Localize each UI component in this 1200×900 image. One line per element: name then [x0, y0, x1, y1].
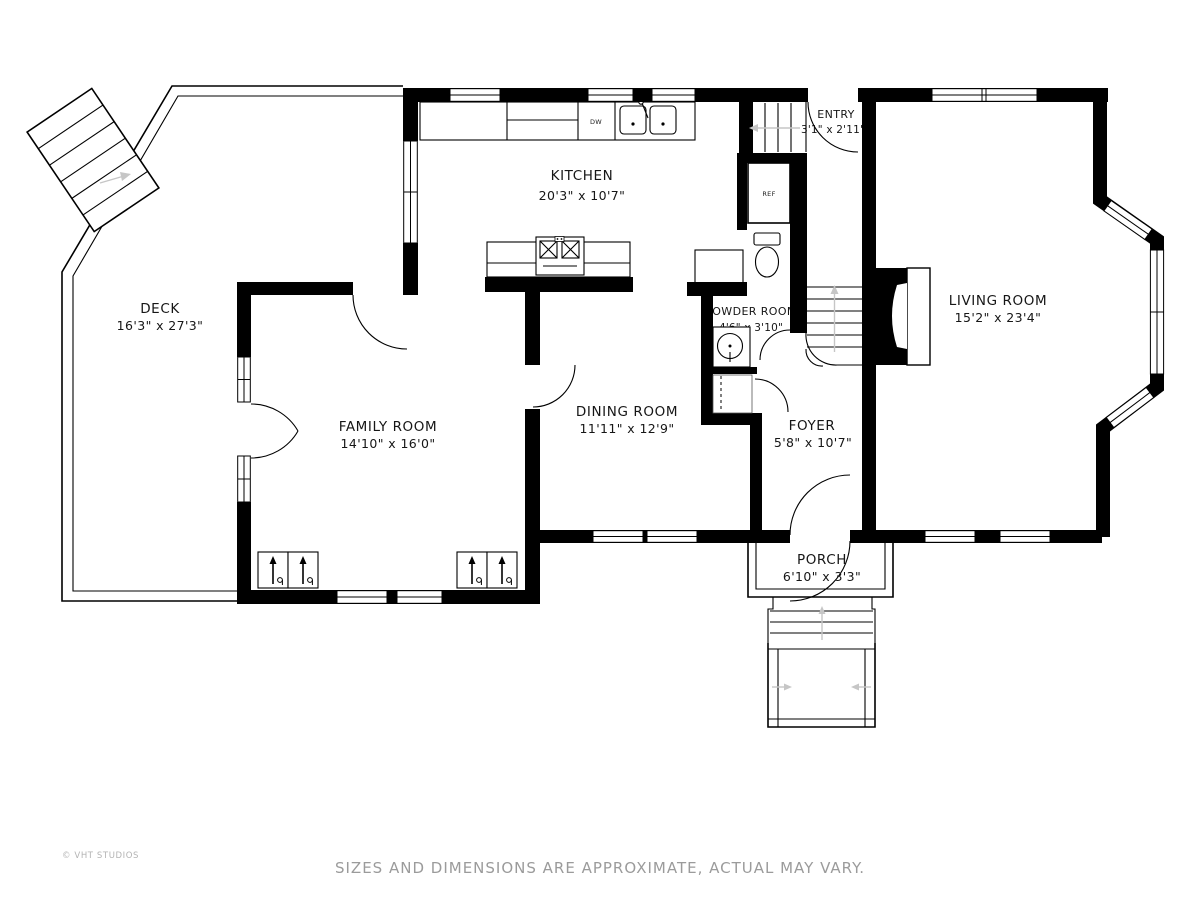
- studio-watermark: © VHT STUDIOS: [62, 851, 139, 861]
- family-window-south-2: [397, 591, 442, 604]
- family-window-south-1: [337, 591, 387, 604]
- deck-door-arc-2: [251, 404, 298, 431]
- entry-label: ENTRY: [817, 108, 855, 121]
- living-window-south-2: [1000, 531, 1050, 543]
- refrigerator: REF: [748, 163, 790, 223]
- family-room-dims: 14'10" x 16'0": [341, 436, 436, 451]
- family-dining-door-arc: [533, 365, 575, 407]
- dining-window-south-2: [647, 531, 697, 543]
- heater-icon: [288, 552, 318, 588]
- entry-stairs: [749, 102, 806, 152]
- deck-stairs: [27, 88, 159, 231]
- vanity-sink-icon: [713, 327, 750, 367]
- porch-dims: 6'10" x 3'3": [783, 569, 861, 584]
- entry-dims: 3'1" x 2'11": [801, 124, 865, 136]
- living-window-top: [932, 89, 1037, 102]
- family-kitchen-door-arc: [353, 295, 407, 349]
- living-window-south-1: [925, 531, 975, 543]
- windows: [238, 89, 1164, 604]
- dishwasher: DW: [590, 118, 602, 126]
- kitchen-dims: 20'3" x 10'7": [539, 188, 626, 203]
- dining-room-label: DINING ROOM: [576, 404, 678, 420]
- porch-direction-arrows: [772, 606, 871, 691]
- kitchen-label: KITCHEN: [551, 168, 614, 184]
- refrigerator-label: REF: [762, 190, 775, 198]
- disclaimer-text: SIZES AND DIMENSIONS ARE APPROXIMATE, AC…: [335, 859, 865, 877]
- footer: © VHT STUDIOS SIZES AND DIMENSIONS ARE A…: [62, 851, 865, 877]
- dishwasher-label: DW: [590, 118, 602, 126]
- living-room-dims: 15'2" x 23'4": [955, 310, 1042, 325]
- front-door-arc-in: [790, 475, 850, 535]
- living-room-label: LIVING ROOM: [949, 293, 1047, 309]
- closet-door-arc: [755, 379, 788, 412]
- deck-label: DECK: [140, 301, 180, 317]
- kitchen-window-top-3: [652, 89, 695, 102]
- toilet-icon: [754, 233, 780, 277]
- powder-door-arc: [760, 330, 790, 360]
- floor-plan-page: DW REF POWDER ROOM 4'6" x 3'10" ENTRY 3'…: [0, 0, 1200, 900]
- foyer-label: FOYER: [789, 418, 836, 434]
- powder-room-label: POWDER ROOM: [705, 305, 797, 318]
- kitchen-window-top-1: [450, 89, 500, 102]
- bay-window-east: [1150, 250, 1163, 374]
- bay-window-lower-angled: [1106, 387, 1154, 427]
- family-room-label: FAMILY ROOM: [339, 419, 438, 435]
- foyer-closet: [713, 375, 752, 413]
- dining-window-south-1: [593, 531, 643, 543]
- kitchen-window-west: [404, 141, 418, 243]
- heater-icon: [487, 552, 517, 588]
- main-staircase: [806, 285, 862, 366]
- heater-icon: [457, 552, 487, 588]
- room-labels: DECK 16'3" x 27'3" KITCHEN 20'3" x 10'7"…: [117, 168, 1048, 584]
- family-window-west-1: [238, 357, 251, 402]
- walls: [237, 88, 1157, 604]
- deck-door-arc-1: [251, 431, 298, 458]
- bay-window-upper-angled: [1104, 200, 1152, 239]
- kitchen-window-top-2: [588, 89, 633, 102]
- family-window-west-2: [238, 456, 251, 502]
- dining-room-dims: 11'11" x 12'9": [580, 421, 675, 436]
- floor-plan-drawing: DW REF POWDER ROOM 4'6" x 3'10" ENTRY 3'…: [0, 0, 1200, 900]
- stove-icon: [536, 237, 584, 276]
- heater-icon: [258, 552, 288, 588]
- foyer-dims: 5'8" x 10'7": [774, 435, 852, 450]
- heater-units: [258, 552, 517, 588]
- porch-label: PORCH: [797, 552, 847, 568]
- deck-dims: 16'3" x 27'3": [117, 318, 204, 333]
